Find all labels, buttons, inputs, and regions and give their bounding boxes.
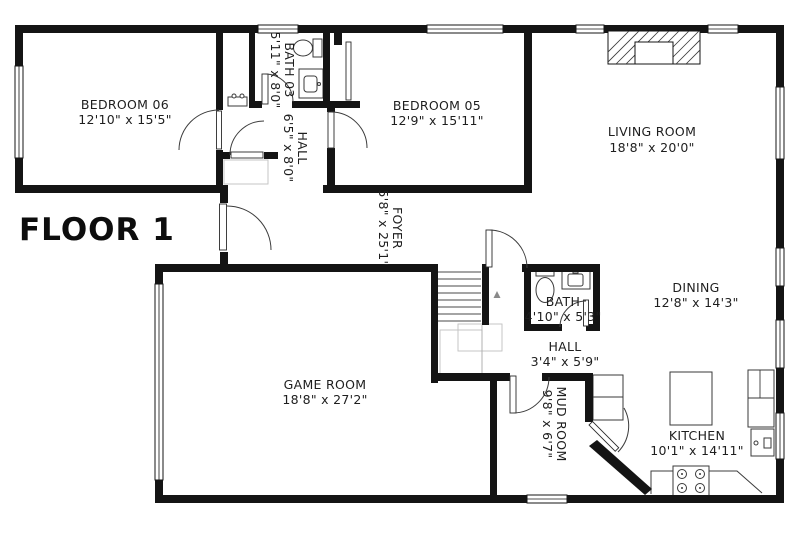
room-dims: 9'8" x 6'7": [540, 390, 555, 459]
room-name: BATH 03: [282, 42, 297, 97]
room-label-mud: MUD ROOM 9'8" x 6'7": [540, 386, 569, 461]
bedroom06-door: [217, 111, 222, 149]
room-name: GAME ROOM: [284, 377, 367, 392]
room-name: HALL: [295, 131, 310, 164]
wall-bedroom06-south: [15, 185, 228, 193]
room-name: DINING: [672, 280, 719, 295]
room-label-bath03: BATH 03 5'11" x 8'0": [268, 31, 297, 108]
room-label-bedroom06: BEDROOM 06 12'10" x 15'5": [78, 97, 172, 127]
room-name: KITCHEN: [669, 428, 725, 443]
floor-plan-svg: BEDROOM 06 12'10" x 15'5" BATH 03 5'11" …: [0, 0, 800, 533]
room-dims: 4'10" x 5'3": [524, 309, 601, 324]
room-name: FOYER: [390, 207, 405, 249]
front-door: [220, 204, 227, 250]
floor-plan-page: BEDROOM 06 12'10" x 15'5" BATH 03 5'11" …: [0, 0, 800, 533]
room-label-living: LIVING ROOM 18'8" x 20'0": [608, 124, 696, 155]
hall-closet-door: [231, 152, 263, 158]
foyer-hall-door: [486, 230, 492, 267]
floor-title: FLOOR 1: [19, 212, 175, 248]
room-label-bedroom05: BEDROOM 05 12'9" x 15'11": [390, 98, 484, 128]
room-name: LIVING ROOM: [608, 124, 696, 139]
room-name: MUD ROOM: [554, 386, 569, 461]
faucet-icon: [318, 83, 321, 86]
room-dims: 18'8" x 20'0": [609, 140, 694, 155]
room-dims: 5'11" x 8'0": [268, 31, 283, 108]
wall-bottom: [155, 495, 784, 503]
room-dims: 10'1" x 14'11": [650, 443, 744, 458]
sink-icon: [568, 274, 583, 286]
fridge-icon: [748, 370, 774, 427]
bedroom05-door: [328, 112, 334, 148]
wall-gameroom-north: [155, 264, 438, 272]
room-dims: 5'8" x 25'1": [376, 189, 391, 266]
room-name: BEDROOM 05: [393, 98, 481, 113]
closet-slider-door: [346, 42, 351, 100]
sink-icon: [304, 76, 317, 92]
room-label-game: GAME ROOM 18'8" x 27'2": [282, 377, 367, 407]
toilet-tank-icon: [313, 39, 322, 57]
room-name: BEDROOM 06: [81, 97, 169, 112]
room-dims: 6'5" x 8'0": [281, 114, 296, 183]
mudroom-door: [510, 376, 516, 413]
room-dims: 12'8" x 14'3": [653, 295, 738, 310]
room-dims: 18'8" x 27'2": [282, 392, 367, 407]
kitchen-island-icon: [670, 372, 712, 425]
cabinet-icon: [593, 375, 623, 420]
room-name: BATH: [546, 294, 580, 309]
room-dims: 3'4" x 5'9": [531, 354, 600, 369]
room-name: HALL: [548, 339, 581, 354]
room-dims: 12'10" x 15'5": [78, 112, 172, 127]
stove-icon: [673, 466, 709, 496]
bath03-door: [262, 74, 268, 104]
room-dims: 12'9" x 15'11": [390, 113, 484, 128]
